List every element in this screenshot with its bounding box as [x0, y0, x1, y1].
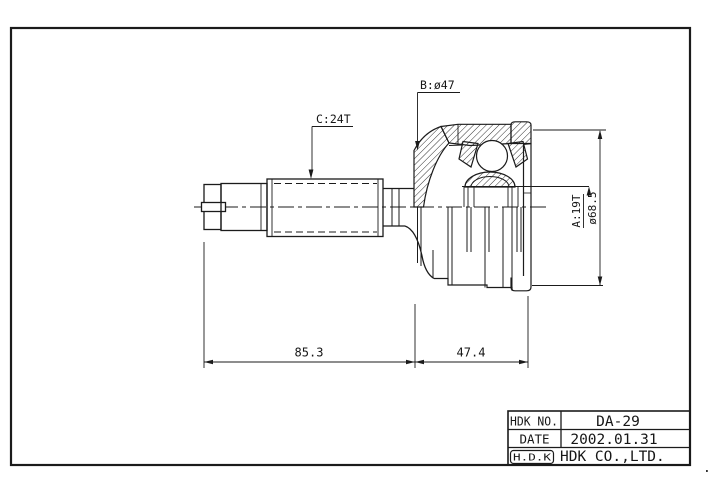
- dim-arrow-left-1: [204, 360, 213, 364]
- stray-dot: .: [703, 461, 711, 476]
- inner-race-section: [465, 172, 515, 187]
- annotations: C:24T B:ø47 A:19T ø68.5: [309, 78, 599, 228]
- cage-section-right: [508, 142, 528, 168]
- housing-bottom-profile: [434, 279, 513, 291]
- company-logo-text: H.D.K: [513, 453, 551, 464]
- dimension-lengths: 85.3 47.4: [204, 242, 528, 368]
- chamfer-lines: [272, 179, 378, 237]
- spline-shaft-body: [267, 179, 383, 237]
- housing-right-face: [524, 144, 532, 278]
- dim-arrow-left-2: [415, 360, 424, 364]
- stub-shaft: [202, 179, 435, 279]
- label-outer-diameter: ø68.5: [586, 191, 599, 224]
- title-row-date-label: DATE: [519, 432, 549, 447]
- spline-root-lines: [274, 184, 377, 233]
- dim-arrow-up: [598, 130, 603, 139]
- title-row-date-value: 2002.01.31: [570, 432, 657, 448]
- housing-wall-section: [414, 127, 449, 208]
- dim-text-shaft-length: 85.3: [295, 346, 324, 360]
- dim-text-housing-length: 47.4: [457, 346, 486, 360]
- dim-arrow-down: [598, 277, 603, 286]
- cad-canvas: C:24T B:ø47 A:19T ø68.5 85.3 47.4: [0, 0, 720, 480]
- housing-lip-bottom: [511, 278, 531, 291]
- joint-housing: [414, 122, 531, 291]
- title-row-no-label: HDK NO.: [510, 414, 558, 429]
- drawing-sheet: C:24T B:ø47 A:19T ø68.5 85.3 47.4: [0, 0, 720, 480]
- leader-line-c: [312, 127, 353, 171]
- label-diameter-b: B:ø47: [420, 78, 455, 92]
- leader-arrow-c: [309, 170, 314, 180]
- label-spline-a: A:19T: [570, 194, 583, 227]
- dim-arrow-right-2: [519, 360, 528, 364]
- housing-bell-curve: [405, 226, 434, 279]
- housing-cap-section: [441, 124, 511, 145]
- title-row-no-value: DA-29: [596, 414, 640, 430]
- title-block: HDK NO. DA-29 DATE 2002.01.31 H.D.K HDK …: [508, 411, 690, 465]
- page-border: [11, 28, 690, 465]
- housing-lip-top: [511, 122, 531, 144]
- dim-arrow-right-1: [406, 360, 415, 364]
- ball-bearing: [477, 141, 508, 172]
- stub-slot: [202, 203, 226, 212]
- company-name: HDK CO.,LTD.: [560, 449, 665, 465]
- race-spline-lines: [464, 187, 518, 207]
- label-spline-c: C:24T: [316, 112, 351, 126]
- housing-step-lines: [418, 207, 522, 290]
